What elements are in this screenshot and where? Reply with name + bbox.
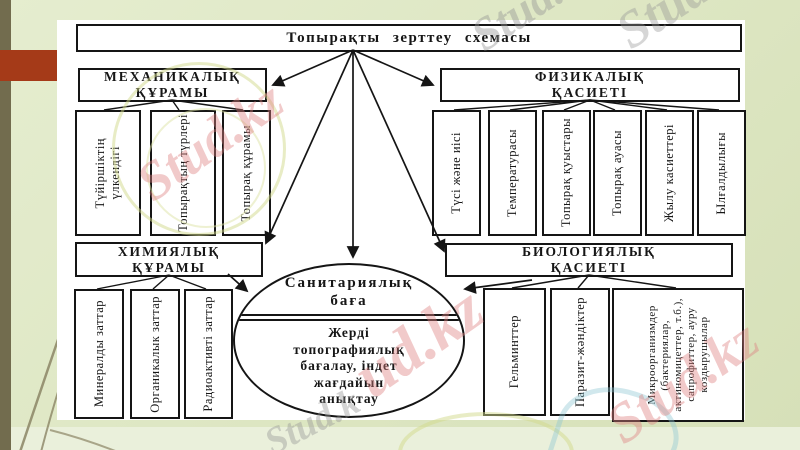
mechanical-item-box: Топырақтың түрлері [150, 110, 216, 236]
biological-item-box: Гельминттер [483, 288, 546, 416]
chemical-item-box: Радиоактивті заттар [184, 289, 233, 419]
mechanical-item-box: Түйіршіктің үлкендігі [75, 110, 141, 236]
chemical-item-box: Органикалык заттар [130, 289, 180, 419]
sanitary-assessment-ellipse: Санитариялық баға Жерді топографиялық ба… [233, 263, 465, 418]
diagram-title-box: Топырақты зерттеу схемасы [76, 24, 742, 52]
physical-item-box: Ылғалдылығы [697, 110, 746, 236]
diagram-title: Топырақты зерттеу схемасы [286, 30, 531, 47]
physical-item-box: Температурасы [488, 110, 537, 236]
physical-properties-header: ФИЗИКАЛЫҚ ҚАСИЕТІ [440, 68, 740, 102]
physical-item-box: Топырақ ауасы [593, 110, 642, 236]
chemical-item-box: Минералды заттар [74, 289, 124, 419]
ellipse-divider [235, 314, 463, 316]
chemical-composition-header: ХИМИЯЛЫҚ ҚҰРАМЫ [75, 242, 263, 277]
physical-item-box: Түсі және иісі [432, 110, 481, 236]
slide: Топырақты зерттеу схемасы МЕХАНИКАЛЫҚ ҚҰ… [0, 0, 800, 450]
biological-item-box: Микроорганизмдер (бактериялар, актиномиц… [612, 288, 744, 422]
mechanical-composition-header: МЕХАНИКАЛЫҚ ҚҰРАМЫ [78, 68, 267, 102]
ellipse-body: Жерді топографиялық бағалау, індет жағда… [235, 325, 463, 408]
red-accent-bar [0, 50, 57, 81]
biological-item-box: Паразит-жәндіктер [550, 288, 610, 416]
biological-properties-header: БИОЛОГИЯЛЫҚ ҚАСИЕТІ [445, 243, 733, 277]
bottom-band [11, 427, 800, 450]
mechanical-item-box: Топырақ құрамы [222, 110, 271, 236]
physical-item-box: Жылу касиеттері [645, 110, 694, 236]
ellipse-heading: Санитариялық баға [235, 274, 463, 310]
ellipse-divider [235, 319, 463, 321]
physical-item-box: Топырақ қуыстары [542, 110, 591, 236]
